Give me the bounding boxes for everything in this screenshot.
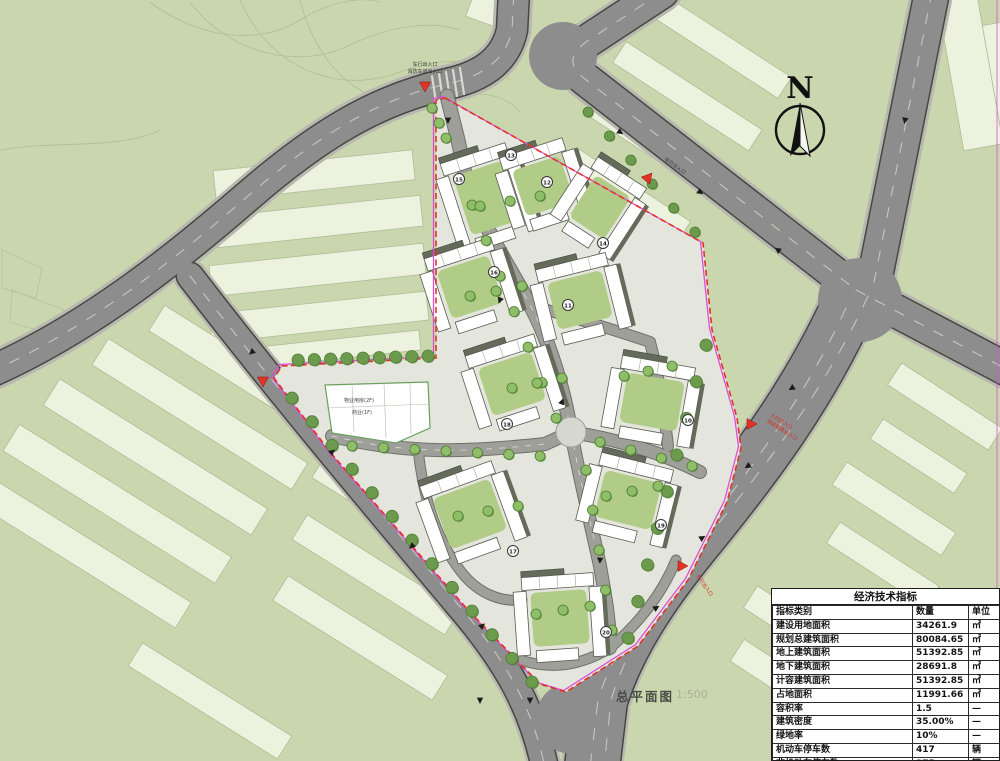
- table-row: 占地面积11991.66㎡: [773, 688, 1000, 702]
- table-cell: 375: [913, 757, 969, 761]
- tree-icon: [601, 585, 611, 595]
- tree-icon: [690, 227, 700, 237]
- building-label: 物业用房(2F): [344, 397, 374, 404]
- table-row: 容积率1.5—: [773, 702, 1000, 716]
- tree-icon: [558, 605, 568, 615]
- building-label: 商业(1F): [352, 409, 372, 416]
- table-cell: 51392.85: [913, 647, 969, 661]
- tree-icon: [687, 461, 697, 471]
- tree-icon: [434, 118, 444, 128]
- table-cell: 10%: [913, 730, 969, 744]
- table-header-cell: 单位: [969, 606, 1000, 620]
- table-cell: 计容建筑面积: [773, 674, 913, 688]
- tree-icon: [653, 481, 663, 491]
- table-cell: 80084.65: [913, 633, 969, 647]
- tree-icon: [346, 463, 358, 475]
- tree-icon: [441, 133, 451, 143]
- entrance-label: 消防车道出入口: [407, 68, 442, 75]
- table-cell: —: [969, 716, 1000, 730]
- tree-icon: [517, 281, 527, 291]
- table-row: 机动车停车数417辆: [773, 743, 1000, 757]
- building-badge-number: 18: [503, 422, 511, 428]
- table-row: 非机动车停车数375辆: [773, 757, 1000, 761]
- table-cell: 占地面积: [773, 688, 913, 702]
- tree-icon: [583, 107, 593, 117]
- tree-icon: [667, 361, 677, 371]
- tree-icon: [486, 629, 498, 641]
- building-badge-number: 12: [543, 180, 551, 186]
- tree-icon: [595, 437, 605, 447]
- tree-icon: [531, 609, 541, 619]
- tree-icon: [357, 352, 369, 364]
- tree-icon: [507, 383, 517, 393]
- commercial-building: 物业用房(2F) 商业(1F): [325, 382, 430, 443]
- tree-icon: [481, 236, 491, 246]
- tree-icon: [504, 449, 514, 459]
- table-cell: 地上建筑面积: [773, 647, 913, 661]
- table-cell: ㎡: [969, 619, 1000, 633]
- tree-icon: [551, 413, 561, 423]
- table-cell: 建筑密度: [773, 716, 913, 730]
- tree-icon: [690, 376, 702, 388]
- building-badge-number: 17: [509, 549, 517, 555]
- tree-icon: [475, 201, 485, 211]
- tree-icon: [509, 307, 519, 317]
- tree-icon: [626, 155, 636, 165]
- tree-icon: [286, 392, 298, 404]
- tree-icon: [326, 439, 338, 451]
- site-plan-page: 物业用房(2F) 商业(1F) 1513121416111810171920 车…: [0, 0, 1000, 761]
- tree-icon: [427, 103, 437, 113]
- tree-icon: [656, 453, 666, 463]
- table-header-cell: 数量: [913, 606, 969, 620]
- tree-icon: [585, 601, 595, 611]
- entrance-label: 车行出入口: [412, 61, 437, 68]
- tree-icon: [472, 448, 482, 458]
- building-slab: [536, 648, 579, 663]
- table-cell: 辆: [969, 743, 1000, 757]
- tree-icon: [386, 510, 398, 522]
- table-row: 建设用地面积34261.9㎡: [773, 619, 1000, 633]
- table-cell: 1.5: [913, 702, 969, 716]
- building-badge-number: 20: [602, 630, 610, 636]
- tree-icon: [526, 676, 538, 688]
- tree-icon: [426, 558, 438, 570]
- indicator-table: 经济技术指标 指标类别数量单位建设用地面积34261.9㎡规划总建筑面积8008…: [771, 588, 1000, 761]
- tree-icon: [325, 353, 337, 365]
- tree-icon: [441, 446, 451, 456]
- table-row: 地上建筑面积51392.85㎡: [773, 647, 1000, 661]
- tree-icon: [532, 378, 542, 388]
- tree-icon: [378, 443, 388, 453]
- table-row: 地下建筑面积28691.8㎡: [773, 661, 1000, 675]
- tree-icon: [491, 286, 501, 296]
- tree-icon: [446, 581, 458, 593]
- table-cell: 绿地率: [773, 730, 913, 744]
- tree-icon: [626, 445, 636, 455]
- table-cell: —: [969, 730, 1000, 744]
- table-cell: 规划总建筑面积: [773, 633, 913, 647]
- building-badge-number: 16: [490, 270, 498, 276]
- tree-icon: [535, 191, 545, 201]
- table-cell: —: [969, 702, 1000, 716]
- building-badge-number: 11: [564, 303, 572, 309]
- building-badge-number: 15: [455, 177, 463, 183]
- tree-icon: [619, 371, 629, 381]
- building-badge-number: 13: [507, 153, 515, 159]
- tree-icon: [622, 632, 634, 644]
- tree-icon: [643, 366, 653, 376]
- tree-icon: [373, 352, 385, 364]
- table-header-cell: 指标类别: [773, 606, 913, 620]
- table-cell: 51392.85: [913, 674, 969, 688]
- tree-icon: [594, 545, 604, 555]
- tree-icon: [341, 353, 353, 365]
- table-cell: 辆: [969, 757, 1000, 761]
- tree-icon: [308, 354, 320, 366]
- tree-icon: [306, 416, 318, 428]
- table-cell: 34261.9: [913, 619, 969, 633]
- tree-icon: [535, 451, 545, 461]
- building-badge-number: 14: [599, 241, 607, 247]
- table-row: 规划总建筑面积80084.65㎡: [773, 633, 1000, 647]
- tree-icon: [422, 350, 434, 362]
- tree-icon: [513, 501, 523, 511]
- tree-icon: [669, 203, 679, 213]
- table-row: 计容建筑面积51392.85㎡: [773, 674, 1000, 688]
- tree-icon: [601, 491, 611, 501]
- tree-icon: [390, 351, 402, 363]
- building-badge-number: 10: [684, 418, 692, 424]
- table-row: 绿地率10%—: [773, 730, 1000, 744]
- tree-icon: [483, 506, 493, 516]
- table-cell: 地下建筑面积: [773, 661, 913, 675]
- table-cell: 机动车停车数: [773, 743, 913, 757]
- tree-icon: [671, 449, 683, 461]
- indicator-table-grid: 指标类别数量单位建设用地面积34261.9㎡规划总建筑面积80084.65㎡地上…: [772, 605, 1000, 761]
- tree-icon: [505, 196, 515, 206]
- table-cell: ㎡: [969, 661, 1000, 675]
- tree-icon: [632, 595, 644, 607]
- tree-icon: [604, 131, 614, 141]
- tree-icon: [347, 441, 357, 451]
- north-label: N: [786, 71, 813, 106]
- courtyard-lawn: [619, 372, 685, 431]
- table-header-row: 指标类别数量单位: [773, 606, 1000, 620]
- tree-icon: [292, 354, 304, 366]
- plan-scale: 1:500: [676, 688, 708, 701]
- table-cell: 417: [913, 743, 969, 757]
- tree-icon: [557, 373, 567, 383]
- tree-icon: [642, 559, 654, 571]
- tree-icon: [700, 339, 712, 351]
- table-cell: ㎡: [969, 647, 1000, 661]
- tree-icon: [627, 486, 637, 496]
- building-badge-number: 19: [657, 523, 665, 529]
- table-cell: 非机动车停车数: [773, 757, 913, 761]
- tree-icon: [588, 505, 598, 515]
- tree-icon: [410, 444, 420, 454]
- table-cell: ㎡: [969, 633, 1000, 647]
- table-row: 建筑密度35.00%—: [773, 716, 1000, 730]
- indicator-table-title: 经济技术指标: [772, 589, 999, 605]
- tree-icon: [506, 652, 518, 664]
- tree-icon: [523, 342, 533, 352]
- table-cell: 28691.8: [913, 661, 969, 675]
- table-cell: ㎡: [969, 688, 1000, 702]
- table-cell: 容积率: [773, 702, 913, 716]
- table-cell: 11991.66: [913, 688, 969, 702]
- table-cell: ㎡: [969, 674, 1000, 688]
- tree-icon: [581, 465, 591, 475]
- table-cell: 35.00%: [913, 716, 969, 730]
- tree-icon: [366, 487, 378, 499]
- plan-title: 总平面图: [616, 686, 674, 705]
- table-cell: 建设用地面积: [773, 619, 913, 633]
- tree-icon: [406, 351, 418, 363]
- tree-icon: [465, 291, 475, 301]
- tree-icon: [466, 605, 478, 617]
- tree-icon: [453, 511, 463, 521]
